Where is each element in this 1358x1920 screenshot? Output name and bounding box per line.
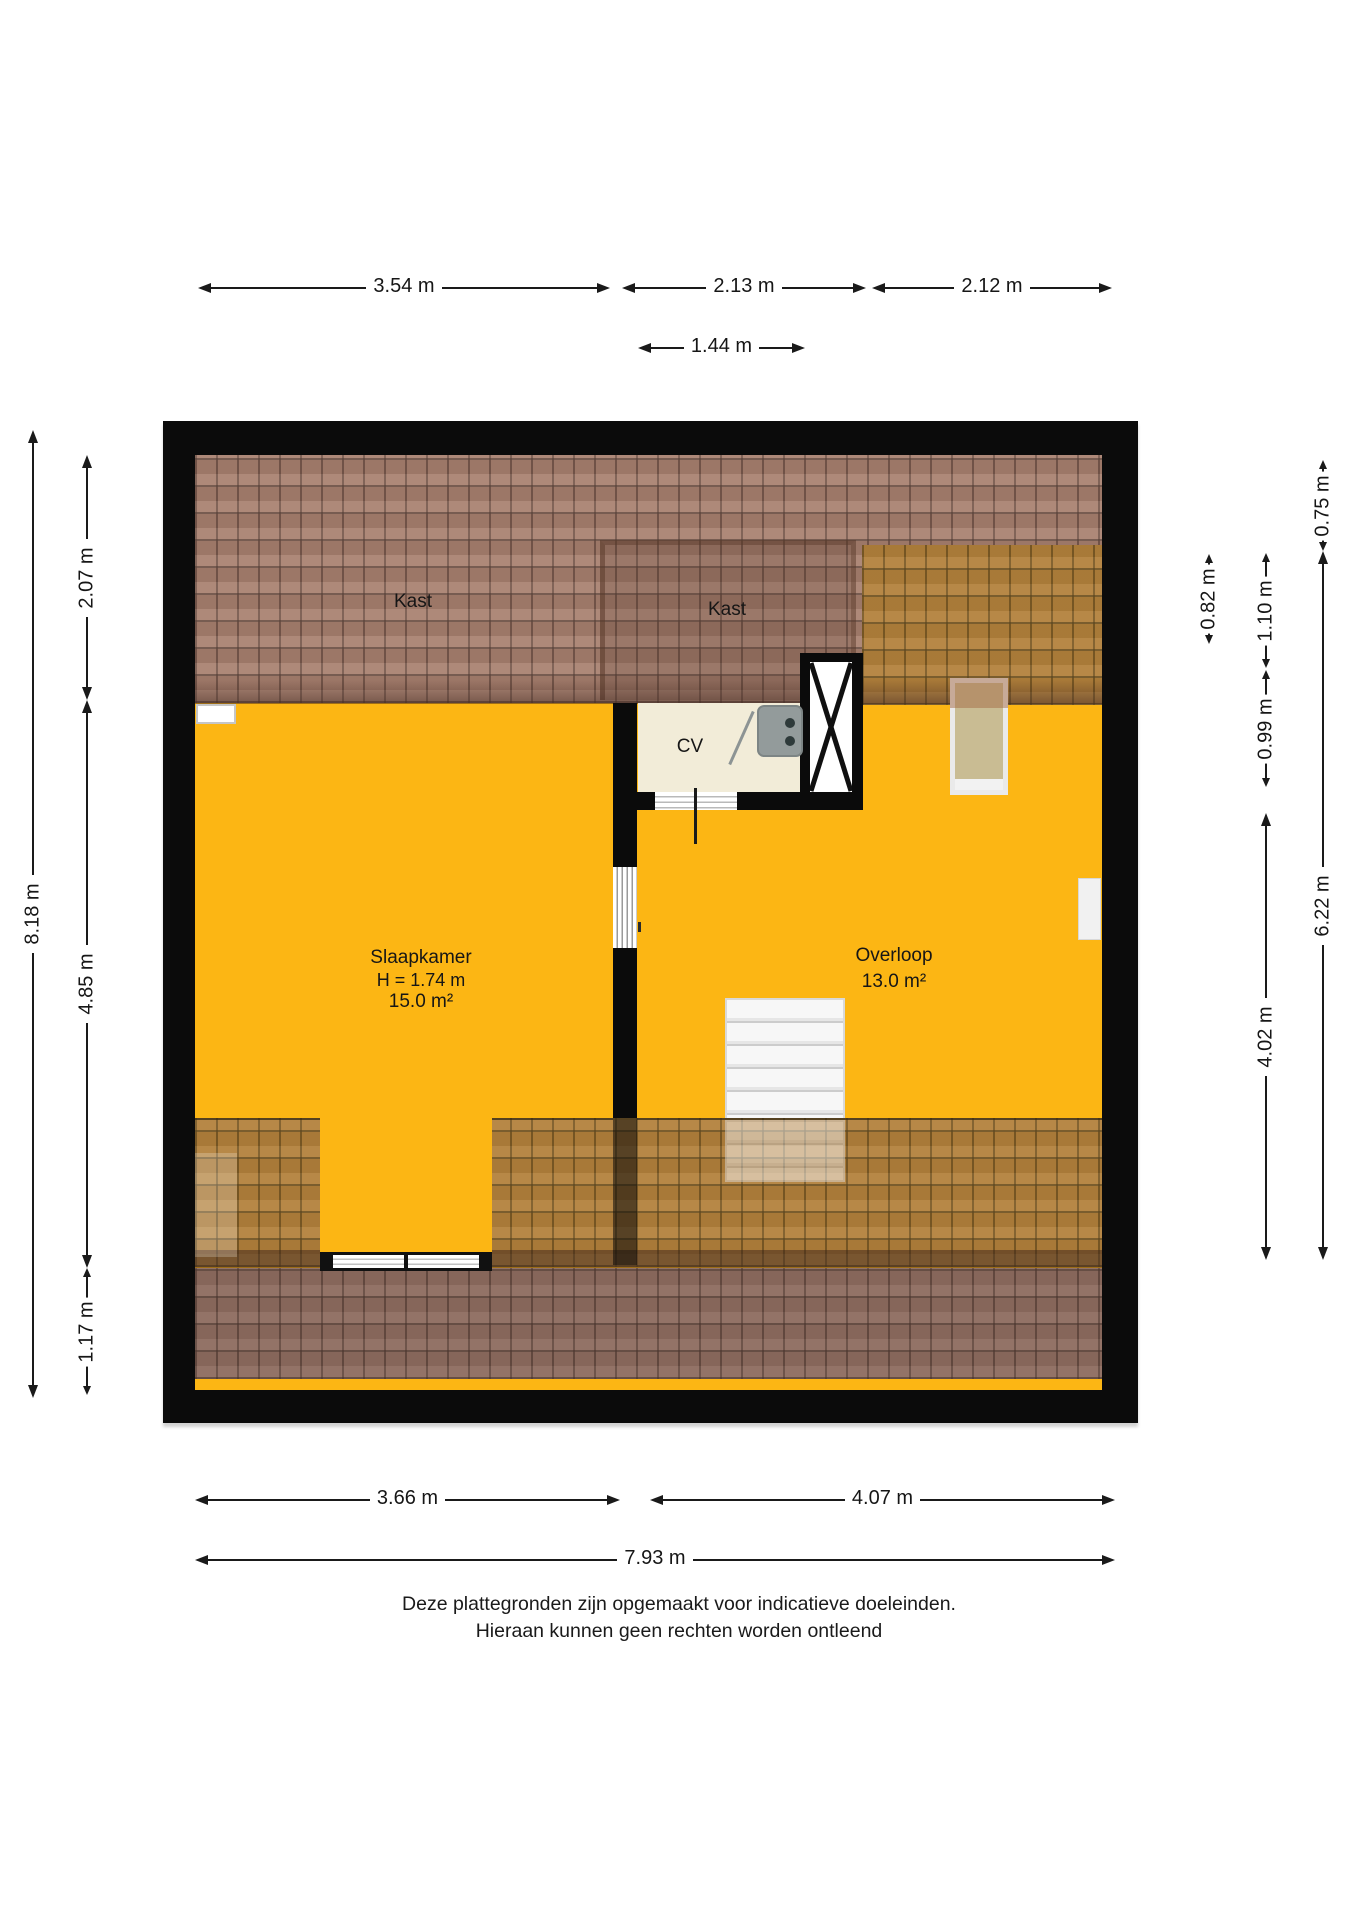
dimension-bottom-407: 4.07 m — [650, 1489, 1115, 1511]
boiler — [757, 705, 803, 757]
floorplan-canvas: Kast Kast CV Slaapkamer H = 1.74 m 15.0 … — [163, 421, 1138, 1423]
arrow-right-icon — [607, 1495, 620, 1505]
dimension-label: 7.93 m — [617, 1547, 692, 1570]
arrow-up-icon — [28, 430, 38, 443]
arrow-up-icon — [1319, 460, 1327, 469]
stairs — [725, 998, 845, 1120]
arrow-up-icon — [1261, 813, 1271, 826]
dimension-label: 8.18 m — [22, 879, 45, 948]
shaft-x-icon — [810, 662, 852, 792]
arrow-right-icon — [1099, 283, 1112, 293]
window-left-wall — [196, 704, 236, 724]
dimension-label: 0.99 m — [1255, 694, 1278, 763]
arrow-down-icon — [1319, 542, 1327, 551]
arrow-left-icon — [195, 1495, 208, 1505]
overloop-name: Overloop — [855, 943, 932, 969]
dimension-left-485: 4.85 m — [76, 700, 98, 1268]
stairs-under-roof — [725, 1120, 845, 1182]
arrow-right-icon — [792, 343, 805, 353]
window-pane — [333, 1255, 404, 1268]
arrow-left-icon — [650, 1495, 663, 1505]
arrow-up-icon — [82, 455, 92, 468]
dimension-top-212: 2.12 m — [872, 277, 1112, 299]
roof-area-bottom-lower — [195, 1268, 1102, 1379]
room-label-kast1: Kast — [394, 591, 432, 613]
shaft — [800, 653, 863, 792]
dimension-right-622: 6.22 m — [1312, 551, 1334, 1260]
dimension-label: 2.13 m — [706, 275, 781, 298]
dimension-left-117: 1.17 m — [76, 1268, 98, 1395]
window-pane — [408, 1255, 479, 1268]
door-tick — [638, 922, 641, 932]
arrow-right-icon — [1102, 1495, 1115, 1505]
floorplan-page: { "floorplan": { "type": "attic floor pl… — [0, 0, 1358, 1920]
arrow-left-icon — [198, 283, 211, 293]
arrow-down-icon — [1318, 1247, 1328, 1260]
dimension-label: 4.02 m — [1255, 1002, 1278, 1071]
dimension-top-213: 2.13 m — [622, 277, 866, 299]
arrow-down-icon — [82, 1255, 92, 1268]
dimension-label: 3.54 m — [366, 275, 441, 298]
dimension-bottom-366: 3.66 m — [195, 1489, 620, 1511]
arrow-left-icon — [638, 343, 651, 353]
arrow-right-icon — [597, 283, 610, 293]
window-right-wall — [1078, 878, 1101, 940]
dimension-label: 4.07 m — [845, 1487, 920, 1510]
arrow-up-icon — [1262, 553, 1270, 562]
dimension-label: 3.66 m — [370, 1487, 445, 1510]
dimension-label: 0.75 m — [1312, 471, 1335, 540]
arrow-left-icon — [195, 1555, 208, 1565]
arrow-right-icon — [853, 283, 866, 293]
arrow-down-icon — [1261, 1247, 1271, 1260]
disclaimer-line1: Deze plattegronden zijn opgemaakt voor i… — [0, 1591, 1358, 1618]
dimension-right-110: 1.10 m — [1255, 553, 1277, 668]
boiler-knob — [785, 736, 795, 746]
wall-divider-lower — [613, 948, 637, 1120]
slaapkamer-name: Slaapkamer — [370, 947, 471, 969]
dimension-bottom-793: 7.93 m — [195, 1549, 1115, 1571]
bed-pillow — [955, 779, 1003, 790]
arrow-up-icon — [82, 700, 92, 713]
arrow-down-icon — [82, 687, 92, 700]
overloop-area: 13.0 m² — [855, 969, 932, 995]
dimension-left-818: 8.18 m — [22, 430, 44, 1398]
arrow-right-icon — [1102, 1555, 1115, 1565]
room-label-slaapkamer: Slaapkamer H = 1.74 m 15.0 m² — [370, 947, 471, 1013]
wall-cv-bottom — [613, 792, 863, 810]
wall-divider-upper — [613, 703, 637, 867]
cv-door-swing-line — [694, 788, 697, 844]
dimension-label: 0.82 m — [1198, 564, 1221, 633]
arrow-up-icon — [83, 1268, 91, 1277]
dormer-window — [320, 1252, 492, 1271]
arrow-left-icon — [872, 283, 885, 293]
dimension-left-207: 2.07 m — [76, 455, 98, 700]
arrow-down-icon — [28, 1385, 38, 1398]
dimension-right-099: 0.99 m — [1255, 670, 1277, 787]
dimension-right-075: 0.75 m — [1312, 460, 1334, 551]
arrow-up-icon — [1262, 670, 1270, 679]
dimension-label: 2.07 m — [76, 543, 99, 612]
dimension-label: 6.22 m — [1312, 871, 1335, 940]
arrow-down-icon — [1205, 635, 1213, 644]
dimension-right-082: 0.82 m — [1198, 554, 1220, 644]
dimension-label: 1.17 m — [76, 1297, 99, 1366]
dormer-floor — [320, 1118, 492, 1255]
arrow-down-icon — [1262, 778, 1270, 787]
arrow-down-icon — [83, 1386, 91, 1395]
dimension-label: 2.12 m — [954, 275, 1029, 298]
dimension-top-354: 3.54 m — [198, 277, 610, 299]
slaapkamer-area: 15.0 m² — [370, 991, 471, 1013]
room-label-kast2: Kast — [708, 599, 746, 621]
room-label-cv: CV — [677, 736, 703, 758]
arrow-up-icon — [1318, 551, 1328, 564]
boiler-knob — [785, 718, 795, 728]
wall-divider-faded — [613, 1120, 637, 1265]
dimension-right-402: 4.02 m — [1255, 813, 1277, 1260]
arrow-up-icon — [1205, 554, 1213, 563]
dimension-top-144: 1.44 m — [638, 337, 805, 359]
dimension-label: 1.44 m — [684, 335, 759, 358]
dimension-label: 1.10 m — [1255, 576, 1278, 645]
slaapkamer-door — [613, 867, 637, 948]
bed-roof-tint — [950, 678, 1008, 708]
dimension-label: 4.85 m — [76, 949, 99, 1018]
slaapkamer-height: H = 1.74 m — [370, 969, 471, 991]
disclaimer-line2: Hieraan kunnen geen rechten worden ontle… — [0, 1618, 1358, 1645]
room-label-overloop: Overloop 13.0 m² — [855, 943, 932, 995]
roof-skylight — [195, 1153, 237, 1257]
arrow-left-icon — [622, 283, 635, 293]
arrow-down-icon — [1262, 659, 1270, 668]
disclaimer: Deze plattegronden zijn opgemaakt voor i… — [0, 1591, 1358, 1645]
